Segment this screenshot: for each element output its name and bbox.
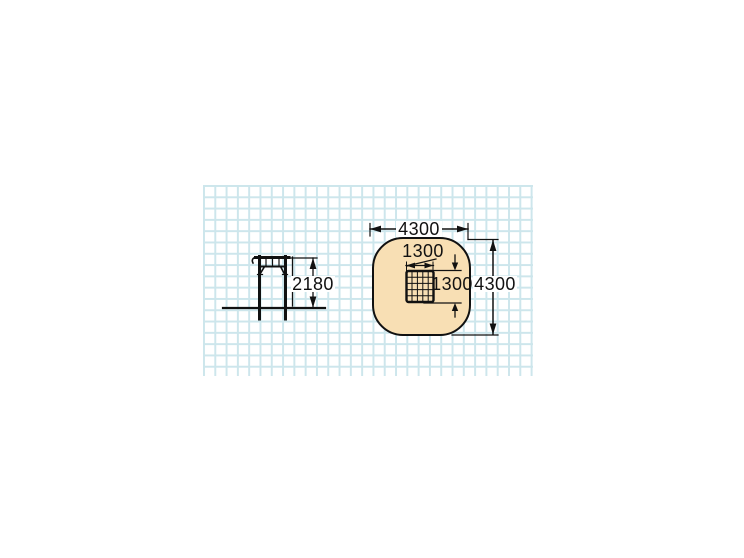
arrow-left [370,226,381,233]
technical-drawing [0,0,744,558]
zone-width-dimension-label: 4300 [396,221,442,237]
arrow-up [310,258,317,269]
diagonal-braces [258,268,288,275]
net-width-dimension-label: 1300 [402,243,444,259]
arrow-right [457,226,468,233]
arrow-down [310,297,317,308]
zone-height-dimension-label: 4300 [473,276,517,292]
drawing-page: 2180 4300 1300 1300 4300 [0,0,744,558]
net-hook [252,258,256,264]
arrow-up [490,240,497,251]
climbing-frame-side [252,257,289,320]
net-height-dimension-label: 1300 [431,276,473,292]
side-height-dimension-label: 2180 [291,276,335,292]
net-strands-side [266,259,279,266]
arrow-down [490,324,497,335]
